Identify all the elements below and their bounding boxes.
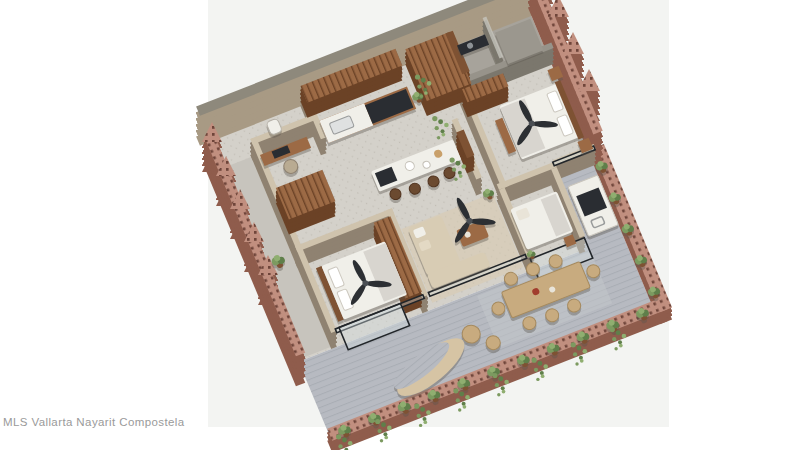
floor-plan-render <box>0 0 800 450</box>
page: MLS Vallarta Nayarit Compostela <box>0 0 800 450</box>
watermark-caption: MLS Vallarta Nayarit Compostela <box>3 416 185 428</box>
